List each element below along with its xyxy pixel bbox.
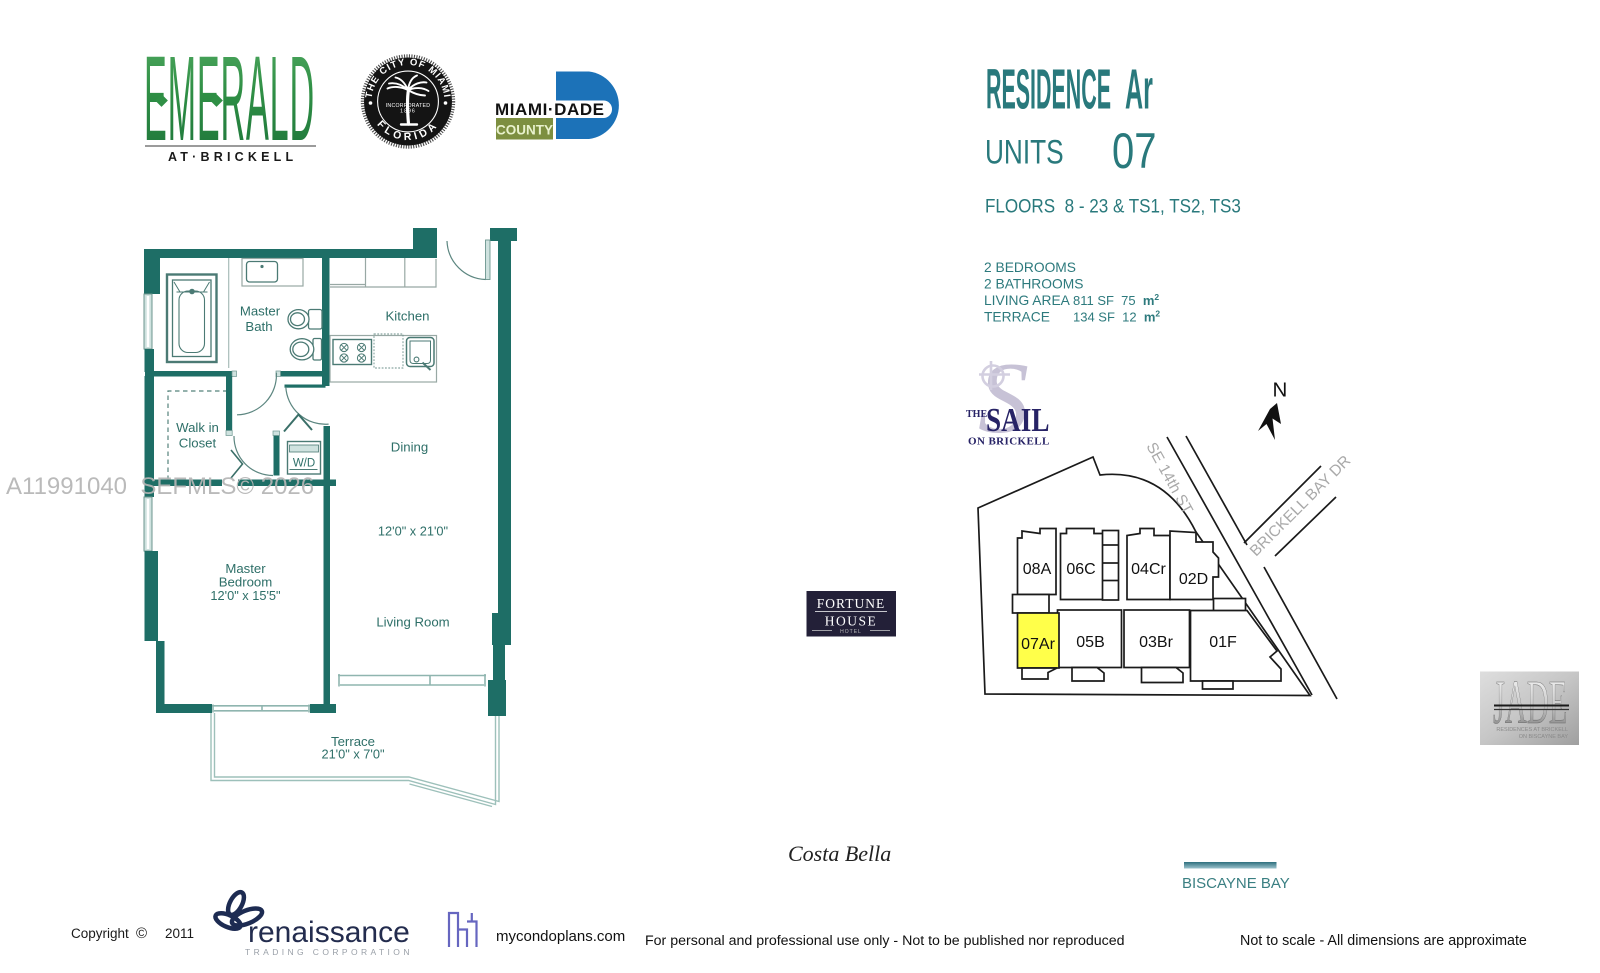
svg-text:mycondoplans.com: mycondoplans.com bbox=[496, 928, 625, 945]
svg-text:COUNTY: COUNTY bbox=[496, 123, 553, 138]
svg-text:Not to scale - All dimensions: Not to scale - All dimensions are approx… bbox=[1240, 933, 1527, 949]
svg-text:THE: THE bbox=[966, 409, 987, 420]
svg-text:FLOORS 8 - 23 & TS1, TS2, TS3: FLOORS 8 - 23 & TS1, TS2, TS3 bbox=[985, 194, 1241, 216]
svg-text:ON BRICKELL: ON BRICKELL bbox=[968, 436, 1050, 448]
svg-text:08A: 08A bbox=[1023, 561, 1052, 578]
svg-text:TERRACE: TERRACE bbox=[984, 310, 1050, 325]
svg-text:Walk in: Walk in bbox=[176, 420, 219, 435]
svg-text:2011: 2011 bbox=[165, 926, 194, 941]
svg-text:2 BATHROOMS: 2 BATHROOMS bbox=[984, 277, 1083, 292]
svg-text:Copyright: Copyright bbox=[71, 926, 129, 941]
svg-text:UNITS: UNITS bbox=[985, 133, 1064, 171]
svg-text:04Cr: 04Cr bbox=[1131, 561, 1166, 578]
svg-text:AT·BRICKELL: AT·BRICKELL bbox=[168, 150, 297, 164]
svg-text:W/D: W/D bbox=[293, 458, 315, 470]
svg-text:Ar: Ar bbox=[1125, 58, 1153, 121]
svg-text:HOUSE: HOUSE bbox=[825, 614, 878, 629]
svg-text:ON BISCAYNE BAY: ON BISCAYNE BAY bbox=[1519, 734, 1569, 740]
svg-text:HOTEL: HOTEL bbox=[840, 629, 862, 635]
svg-text:Master: Master bbox=[240, 304, 281, 319]
svg-text:1896: 1896 bbox=[400, 109, 416, 115]
svg-text:07: 07 bbox=[1112, 123, 1156, 179]
svg-text:©: © bbox=[136, 925, 147, 942]
svg-text:12'0" x 15'5": 12'0" x 15'5" bbox=[210, 588, 280, 603]
svg-text:21'0" x 7'0": 21'0" x 7'0" bbox=[321, 747, 384, 762]
svg-text:LIVING AREA: LIVING AREA bbox=[984, 293, 1071, 308]
svg-text:A11991040 SEFMLS© 2026: A11991040 SEFMLS© 2026 bbox=[6, 473, 314, 500]
svg-text:N: N bbox=[1273, 379, 1288, 402]
svg-text:RESIDENCES AT BRICKELL: RESIDENCES AT BRICKELL bbox=[1496, 727, 1568, 733]
svg-text:07Ar: 07Ar bbox=[1021, 636, 1055, 653]
svg-text:renaissance: renaissance bbox=[248, 916, 410, 949]
svg-text:Bath: Bath bbox=[245, 319, 272, 334]
svg-text:RESIDENCE: RESIDENCE bbox=[986, 58, 1111, 122]
svg-text:For personal and professional: For personal and professional use only -… bbox=[645, 933, 1125, 949]
svg-text:02D: 02D bbox=[1179, 571, 1208, 588]
svg-text:MIAMI·DADE: MIAMI·DADE bbox=[495, 100, 604, 119]
svg-text:134 SF 12 m2: 134 SF 12 m2 bbox=[1073, 309, 1160, 325]
svg-text:12'0" x 21'0": 12'0" x 21'0" bbox=[378, 524, 448, 539]
svg-text:Dining: Dining bbox=[391, 440, 428, 455]
svg-text:811 SF 75 m2: 811 SF 75 m2 bbox=[1073, 292, 1159, 308]
svg-text:Living Room: Living Room bbox=[376, 615, 449, 630]
svg-text:01F: 01F bbox=[1209, 634, 1237, 651]
svg-text:Kitchen: Kitchen bbox=[386, 309, 430, 324]
svg-text:INCORPORATED: INCORPORATED bbox=[386, 103, 431, 109]
svg-text:Costa Bella: Costa Bella bbox=[788, 841, 891, 866]
svg-text:05B: 05B bbox=[1076, 634, 1104, 651]
svg-text:Closet: Closet bbox=[179, 436, 217, 451]
svg-text:FORTUNE: FORTUNE bbox=[817, 596, 885, 611]
svg-text:06C: 06C bbox=[1066, 561, 1095, 578]
svg-text:TRADING CORPORATION: TRADING CORPORATION bbox=[245, 947, 413, 957]
svg-text:2 BEDROOMS: 2 BEDROOMS bbox=[984, 260, 1076, 275]
svg-text:SAIL: SAIL bbox=[986, 401, 1049, 439]
svg-text:03Br: 03Br bbox=[1139, 634, 1173, 651]
svg-text:BISCAYNE BAY: BISCAYNE BAY bbox=[1182, 875, 1290, 892]
